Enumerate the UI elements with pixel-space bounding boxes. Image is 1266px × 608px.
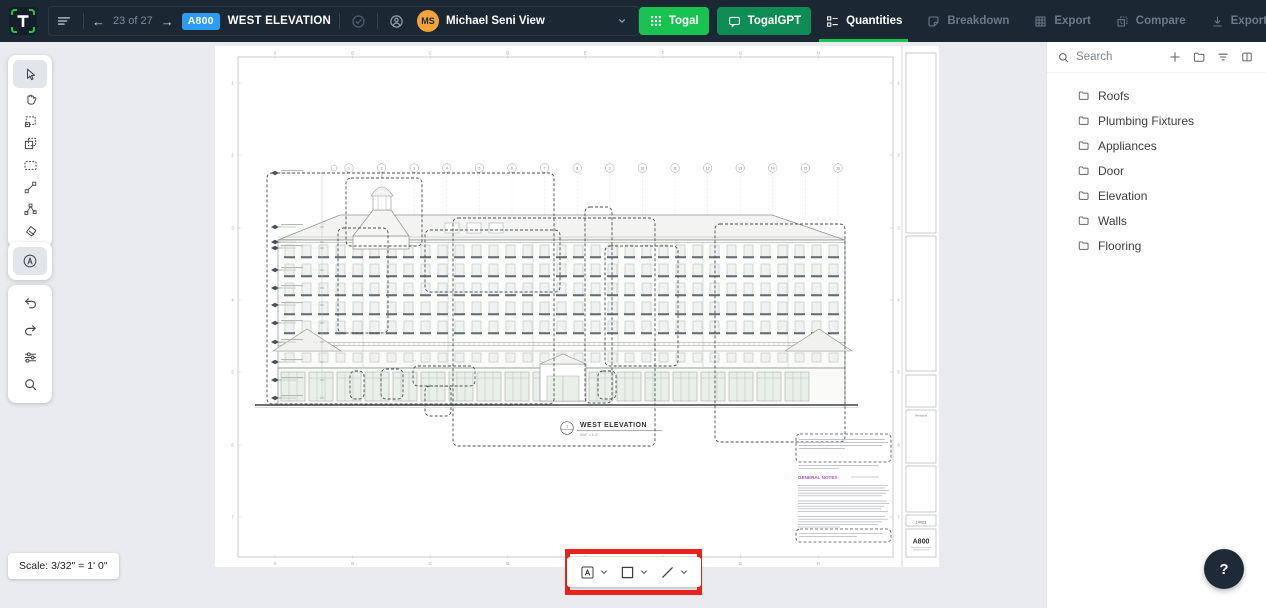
svg-text:3/32" = 1'-0": 3/32" = 1'-0" xyxy=(580,433,599,437)
folder-label: Roofs xyxy=(1098,89,1129,103)
tab-label: Export PDF xyxy=(1231,15,1266,27)
folder-icon xyxy=(1077,139,1090,152)
table-grid-icon xyxy=(1033,14,1048,29)
tab-label: Compare xyxy=(1136,15,1186,27)
tool-panel-main xyxy=(8,55,52,247)
top-tabs: Quantities Breakdown Export Compare xyxy=(825,0,1266,42)
svg-text:A: A xyxy=(274,561,277,566)
assign-user-icon[interactable] xyxy=(386,11,407,32)
eraser-tool[interactable] xyxy=(13,220,47,242)
folder-label: Walls xyxy=(1098,214,1127,228)
label-tool[interactable] xyxy=(13,247,47,275)
marquee-rectangle-tool[interactable] xyxy=(13,154,47,176)
select-cursor-tool[interactable] xyxy=(13,60,47,88)
tab-compare[interactable]: Compare xyxy=(1115,0,1186,42)
svg-text:B: B xyxy=(351,51,354,56)
togalgpt-button[interactable]: TogalGPT xyxy=(717,7,811,35)
sheet-nav-cluster: ← 23 of 27 → A800 WEST ELEVATION MS Mich… xyxy=(48,6,639,36)
folder-item-appliances[interactable]: Appliances xyxy=(1047,133,1266,158)
folder-icon xyxy=(1077,239,1090,252)
rectangle-icon xyxy=(619,564,636,581)
prev-page-button[interactable]: ← xyxy=(92,15,105,28)
folder-item-elevation[interactable]: Elevation xyxy=(1047,183,1266,208)
chevron-down-icon xyxy=(639,567,649,577)
svg-text:6: 6 xyxy=(511,167,513,171)
tab-label: Quantities xyxy=(846,15,902,27)
workspace: AABBCCDDEEFFGGHH112233445566771234567891… xyxy=(0,42,1266,608)
tab-label: Export xyxy=(1054,15,1090,27)
avatar: MS xyxy=(417,10,439,32)
tab-export-pdf[interactable]: Export PDF xyxy=(1210,0,1266,42)
svg-text:14: 14 xyxy=(771,167,775,171)
tool-panel-history xyxy=(8,285,52,403)
tab-export[interactable]: Export xyxy=(1033,0,1090,42)
svg-text:G: G xyxy=(739,51,742,56)
chat-bubble-icon xyxy=(727,14,742,29)
svg-text:4: 4 xyxy=(446,167,448,171)
svg-text:15: 15 xyxy=(804,167,808,171)
svg-text:14023: 14023 xyxy=(916,520,927,524)
svg-text:E: E xyxy=(584,51,587,56)
folder-item-flooring[interactable]: Flooring xyxy=(1047,233,1266,258)
tab-quantities[interactable]: Quantities xyxy=(825,0,902,42)
add-item-icon[interactable] xyxy=(1166,48,1184,66)
divider xyxy=(377,13,378,29)
text-box-icon xyxy=(579,564,596,581)
sticker-icon xyxy=(926,14,941,29)
check-circle-icon[interactable] xyxy=(348,11,369,32)
sheet-number-badge: A800 xyxy=(182,13,220,30)
top-bar: ← 23 of 27 → A800 WEST ELEVATION MS Mich… xyxy=(0,0,1266,42)
text-label-tool-dropdown[interactable] xyxy=(576,564,612,581)
tab-breakdown[interactable]: Breakdown xyxy=(926,0,1009,42)
scale-readout: Scale: 3/32" = 1' 0" xyxy=(8,553,119,579)
bottom-tools xyxy=(567,557,701,587)
svg-text:3: 3 xyxy=(413,167,415,171)
west-elevation-drawing[interactable]: AABBCCDDEEFFGGHH112233445566771234567891… xyxy=(215,46,939,567)
svg-text:1: 1 xyxy=(566,424,568,428)
togal-logo-icon xyxy=(8,6,38,36)
compare-overlap-icon xyxy=(1115,14,1130,29)
adjust-sliders-icon[interactable] xyxy=(13,344,47,371)
svg-text:H: H xyxy=(817,51,820,56)
togal-button-label: Togal xyxy=(669,15,699,27)
divider xyxy=(339,13,340,29)
svg-text:16: 16 xyxy=(836,167,840,171)
sheet-title: WEST ELEVATION xyxy=(228,15,331,27)
redo-icon[interactable] xyxy=(13,317,47,344)
chevron-down-icon xyxy=(679,567,689,577)
folder-icon xyxy=(1077,114,1090,127)
line-tool-dropdown[interactable] xyxy=(656,564,692,581)
folder-item-plumbing-fixtures[interactable]: Plumbing Fixtures xyxy=(1047,108,1266,133)
view-name: Michael Seni View xyxy=(446,15,545,27)
svg-text:13: 13 xyxy=(738,167,742,171)
scale-label: Scale: 3/32" = 1' 0" xyxy=(19,560,108,572)
checklist-icon xyxy=(825,14,840,29)
svg-text:2: 2 xyxy=(381,167,383,171)
page-counter: 23 of 27 xyxy=(113,15,153,27)
duplicate-region-tool[interactable] xyxy=(13,132,47,154)
folder-icon xyxy=(1077,214,1090,227)
folder-label: Elevation xyxy=(1098,189,1147,203)
svg-text:F: F xyxy=(662,51,665,56)
svg-text:GENERAL NOTES: GENERAL NOTES xyxy=(798,475,837,480)
drawing-sheet[interactable]: AABBCCDDEEFFGGHH112233445566771234567891… xyxy=(215,46,939,567)
svg-text:5: 5 xyxy=(478,167,480,171)
sidebar-header xyxy=(1047,42,1266,73)
undo-icon[interactable] xyxy=(13,290,47,317)
folder-icon xyxy=(1077,189,1090,202)
search-input[interactable] xyxy=(1076,51,1160,63)
search-icon xyxy=(1057,51,1070,64)
view-selector[interactable]: MS Michael Seni View xyxy=(417,10,628,32)
rectangle-tool-dropdown[interactable] xyxy=(616,564,652,581)
filter-icon[interactable] xyxy=(1214,48,1232,66)
svg-text:D: D xyxy=(506,561,509,566)
svg-text:12: 12 xyxy=(706,167,710,171)
folder-label: Door xyxy=(1098,164,1124,178)
folder-item-walls[interactable]: Walls xyxy=(1047,208,1266,233)
svg-text:B: B xyxy=(351,561,354,566)
folder-label: Flooring xyxy=(1098,239,1141,253)
svg-text:G: G xyxy=(739,561,742,566)
app-logo[interactable] xyxy=(8,6,38,36)
svg-text:C: C xyxy=(429,51,432,56)
togal-button[interactable]: Togal xyxy=(639,7,709,35)
svg-text:A: A xyxy=(274,51,277,56)
folder-label: Appliances xyxy=(1098,139,1157,153)
folder-icon xyxy=(1077,164,1090,177)
togalgpt-button-label: TogalGPT xyxy=(748,15,801,27)
folder-item-roofs[interactable]: Roofs xyxy=(1047,83,1266,108)
svg-text:9: 9 xyxy=(609,167,611,171)
magic-region-tool[interactable] xyxy=(13,110,47,132)
zoom-search-icon[interactable] xyxy=(13,371,47,398)
chevron-down-icon xyxy=(616,15,628,27)
chevron-down-icon xyxy=(599,567,609,577)
svg-text:11: 11 xyxy=(673,167,677,171)
measure-line-tool[interactable] xyxy=(13,176,47,198)
folder-item-door[interactable]: Door xyxy=(1047,158,1266,183)
line-icon xyxy=(659,564,676,581)
next-page-button[interactable]: → xyxy=(161,15,174,28)
tab-label: Breakdown xyxy=(947,15,1009,27)
sheet-list-icon[interactable] xyxy=(53,10,75,32)
svg-text:10: 10 xyxy=(641,167,645,171)
folder-icon xyxy=(1077,89,1090,102)
svg-text:8: 8 xyxy=(576,167,578,171)
svg-text:C: C xyxy=(429,561,432,566)
download-icon xyxy=(1210,14,1225,29)
divider xyxy=(83,13,84,29)
svg-text:1: 1 xyxy=(348,167,350,171)
folder-label: Plumbing Fixtures xyxy=(1098,114,1194,128)
tool-panel-label xyxy=(8,242,52,280)
svg-text:Revisions: Revisions xyxy=(915,414,928,418)
waffle-grid-icon xyxy=(649,14,663,28)
help-button[interactable]: ? xyxy=(1204,549,1244,589)
annotation-box xyxy=(565,549,702,595)
svg-text:D: D xyxy=(506,51,509,56)
pan-hand-tool[interactable] xyxy=(13,88,47,110)
svg-text:7: 7 xyxy=(544,167,546,171)
svg-text:WEST ELEVATION: WEST ELEVATION xyxy=(580,422,647,429)
folder-list: Roofs Plumbing Fixtures Appliances Door … xyxy=(1047,73,1266,258)
new-folder-icon[interactable] xyxy=(1190,48,1208,66)
quantities-sidebar: Roofs Plumbing Fixtures Appliances Door … xyxy=(1046,42,1266,608)
active-tab-underline xyxy=(819,39,908,42)
svg-text:A800: A800 xyxy=(913,539,930,546)
measure-polyline-tool[interactable] xyxy=(13,198,47,220)
panel-book-icon[interactable] xyxy=(1238,48,1256,66)
svg-text:H: H xyxy=(817,561,820,566)
